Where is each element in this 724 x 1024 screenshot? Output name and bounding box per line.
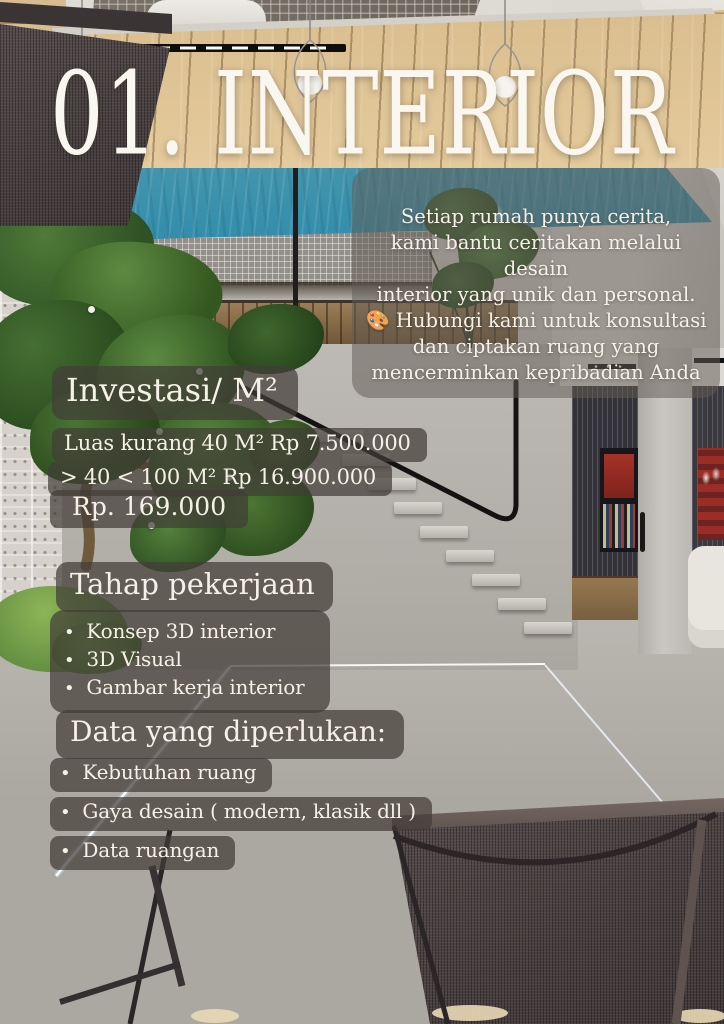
required-data-item: Gaya desain ( modern, klasik dll ) [50, 797, 432, 831]
required-data-list: Kebutuhan ruang Gaya desain ( modern, kl… [50, 758, 432, 875]
poster: 01. INTERIOR Setiap rumah punya cerita, … [0, 0, 724, 1024]
investment-highlight: Rp. 169.000 [50, 490, 248, 528]
required-data-heading: Data yang diperlukan: [56, 710, 404, 759]
required-data-item: Data ruangan [50, 836, 235, 870]
investment-row: Luas kurang 40 M² Rp 7.500.000 [52, 428, 427, 462]
intro-paragraph: Setiap rumah punya cerita, kami bantu ce… [352, 168, 720, 398]
investment-heading: Investasi/ M² [52, 366, 298, 420]
work-stages-heading: Tahap pekerjaan [56, 562, 333, 612]
intro-text: Setiap rumah punya cerita, kami bantu ce… [365, 205, 706, 384]
work-stage-item: 3D Visual [62, 647, 318, 673]
work-stage-item: Gambar kerja interior [62, 675, 318, 701]
work-stages-list: Konsep 3D interior 3D Visual Gambar kerj… [50, 610, 330, 713]
work-stage-item: Konsep 3D interior [62, 619, 318, 645]
page-title: 01. INTERIOR [50, 58, 674, 172]
required-data-item: Kebutuhan ruang [50, 758, 272, 792]
